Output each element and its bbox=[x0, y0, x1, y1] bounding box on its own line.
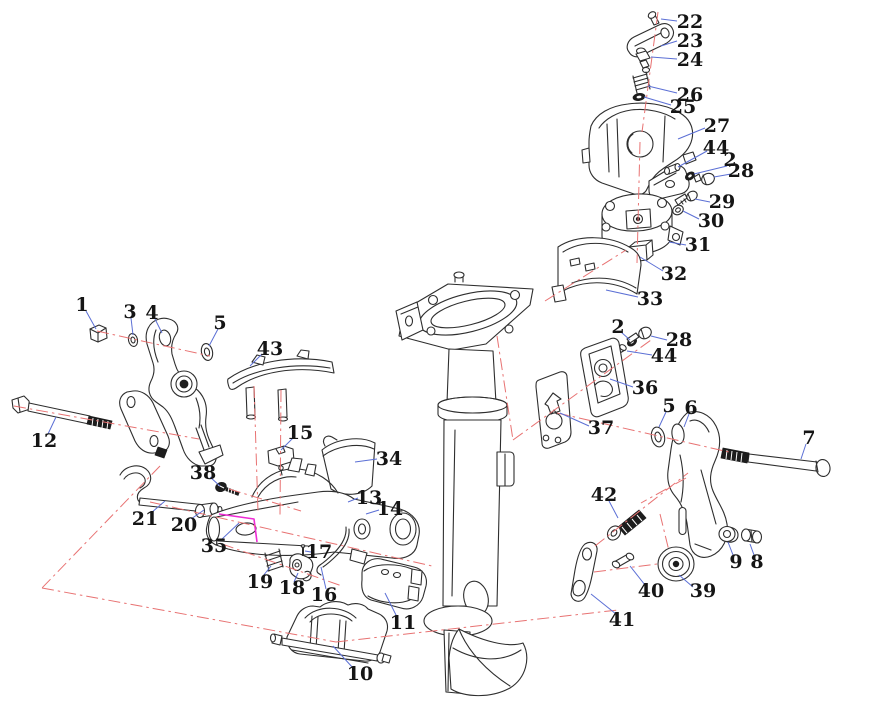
part-number-31: 31 bbox=[685, 234, 711, 256]
diagram-canvas: 2223242625274422829303132332284436375679… bbox=[0, 0, 869, 720]
part-number-44: 44 bbox=[651, 345, 677, 367]
part-number-7: 7 bbox=[802, 427, 815, 449]
part-33-lower-mount-shell bbox=[552, 238, 641, 302]
part-number-33: 33 bbox=[637, 288, 663, 310]
part-number-42: 42 bbox=[591, 484, 617, 506]
part-5-washer-right bbox=[650, 426, 667, 448]
part-number-9: 9 bbox=[729, 551, 742, 573]
part-25-ring bbox=[632, 93, 645, 102]
part-number-16: 16 bbox=[311, 584, 337, 606]
parts-diagram: 2223242625274422829303132332284436375679… bbox=[0, 0, 869, 720]
part-number-12: 12 bbox=[31, 430, 57, 452]
part-5-washer-left bbox=[200, 343, 214, 362]
leader-line-30 bbox=[683, 211, 699, 219]
part-number-30: 30 bbox=[698, 210, 724, 232]
part-number-39: 39 bbox=[690, 580, 716, 602]
part-30-washer bbox=[671, 203, 685, 216]
part-34-band bbox=[322, 436, 375, 494]
part-number-1: 1 bbox=[75, 294, 88, 316]
part-number-35: 35 bbox=[201, 535, 227, 557]
part-42-spring-bolt bbox=[605, 510, 646, 543]
part-number-19: 19 bbox=[247, 571, 273, 593]
part-6-clamp-bracket-right bbox=[668, 412, 728, 558]
part-23-lever bbox=[627, 24, 673, 57]
part-number-28: 28 bbox=[728, 160, 754, 182]
part-number-38: 38 bbox=[190, 462, 216, 484]
part-7-bolt bbox=[721, 448, 831, 477]
part-number-3: 3 bbox=[123, 301, 136, 323]
part-number-10: 10 bbox=[347, 663, 373, 685]
part-number-17: 17 bbox=[306, 541, 332, 563]
part-8-nut bbox=[742, 529, 762, 543]
part-number-5: 5 bbox=[213, 312, 226, 334]
part-number-21: 21 bbox=[132, 508, 158, 530]
part-number-8: 8 bbox=[750, 551, 763, 573]
part-number-41: 41 bbox=[609, 609, 635, 631]
part-number-18: 18 bbox=[279, 577, 305, 599]
part-1-nut bbox=[90, 325, 107, 342]
part-number-36: 36 bbox=[632, 377, 658, 399]
part-number-43: 43 bbox=[257, 338, 283, 360]
part-number-5: 5 bbox=[662, 395, 675, 417]
part-number-40: 40 bbox=[638, 580, 664, 602]
part-39-damper bbox=[658, 547, 694, 581]
part-number-24: 24 bbox=[677, 49, 703, 71]
leader-line-32 bbox=[640, 257, 663, 271]
leader-line-22 bbox=[661, 19, 677, 21]
part-10-roller-assembly bbox=[271, 602, 392, 663]
leader-line-26 bbox=[648, 86, 677, 93]
leader-line-2 bbox=[694, 166, 727, 174]
part-number-14: 14 bbox=[377, 498, 403, 520]
part-number-11: 11 bbox=[390, 612, 416, 634]
part-number-27: 27 bbox=[704, 115, 730, 137]
leader-line-24 bbox=[651, 57, 677, 59]
part-40-pin bbox=[611, 552, 635, 570]
part-central-swivel-bracket bbox=[396, 272, 533, 696]
leader-line-28 bbox=[651, 336, 667, 340]
part-number-20: 20 bbox=[171, 514, 197, 536]
part-37-plate bbox=[536, 372, 571, 449]
part-28-bolt-mid bbox=[627, 325, 653, 343]
part-11-clamp-half bbox=[362, 559, 427, 609]
part-number-15: 15 bbox=[287, 422, 313, 444]
part-38-screw bbox=[214, 481, 239, 495]
part-number-4: 4 bbox=[145, 302, 158, 324]
part-43-saddle bbox=[228, 350, 334, 421]
part-number-25: 25 bbox=[670, 96, 696, 118]
part-number-32: 32 bbox=[661, 263, 687, 285]
part-9-bushing bbox=[719, 527, 738, 543]
part-number-37: 37 bbox=[588, 417, 614, 439]
part-12-bolt bbox=[12, 396, 112, 429]
part-number-2: 2 bbox=[611, 316, 624, 338]
leader-line-29 bbox=[695, 199, 710, 202]
part-number-6: 6 bbox=[684, 397, 697, 419]
part-number-34: 34 bbox=[376, 448, 402, 470]
part-41-lever bbox=[571, 542, 597, 601]
